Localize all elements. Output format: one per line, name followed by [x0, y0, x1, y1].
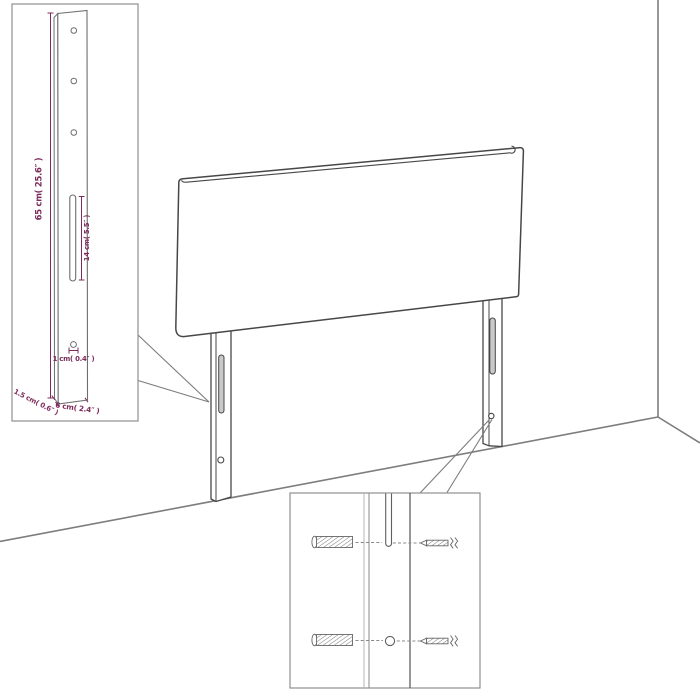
inset-leg-slot	[70, 195, 76, 281]
inset-leader-lines-right	[421, 420, 493, 493]
mounting-inset	[290, 493, 480, 688]
mounting-slot	[386, 494, 392, 547]
left-leg-hole	[218, 457, 224, 463]
mounting-inset-box	[290, 493, 480, 688]
inset-leg-hole-3	[71, 130, 77, 136]
inset-leg-hole-2	[71, 78, 77, 84]
right-leg-hole	[489, 413, 494, 418]
right-leg-slot	[490, 318, 496, 374]
inset-leg-bottom-hole	[71, 342, 77, 348]
headboard-assembly-diagram: 65 cm( 25.6″ ) 14 cm( 5.5″ ) 1 cm( 0.4″ …	[0, 0, 700, 700]
wall-plug-bottom-icon	[312, 634, 353, 646]
wall-plug-top-icon	[312, 536, 353, 548]
floor-line-right	[658, 417, 700, 443]
leader-line	[138, 335, 209, 402]
left-leg-body	[211, 326, 231, 502]
hole-dimension-label: 1 cm( 0.4″ )	[53, 355, 95, 363]
headboard	[176, 146, 524, 336]
diagram-svg: 65 cm( 25.6″ ) 14 cm( 5.5″ ) 1 cm( 0.4″ …	[0, 0, 700, 700]
slot-dimension-label: 14 cm( 5.5″ )	[83, 215, 91, 261]
height-dimension-label: 65 cm( 25.6″ )	[34, 157, 44, 220]
inset-leg-hole-1	[71, 28, 77, 34]
leader-line	[421, 420, 490, 493]
mounting-hole	[385, 636, 394, 645]
headboard-panel	[176, 148, 524, 337]
dimension-inset: 65 cm( 25.6″ ) 14 cm( 5.5″ ) 1 cm( 0.4″ …	[12, 4, 138, 421]
inset-leader-lines-left	[138, 335, 209, 402]
left-leg-slot	[219, 355, 224, 413]
left-leg	[211, 326, 231, 502]
